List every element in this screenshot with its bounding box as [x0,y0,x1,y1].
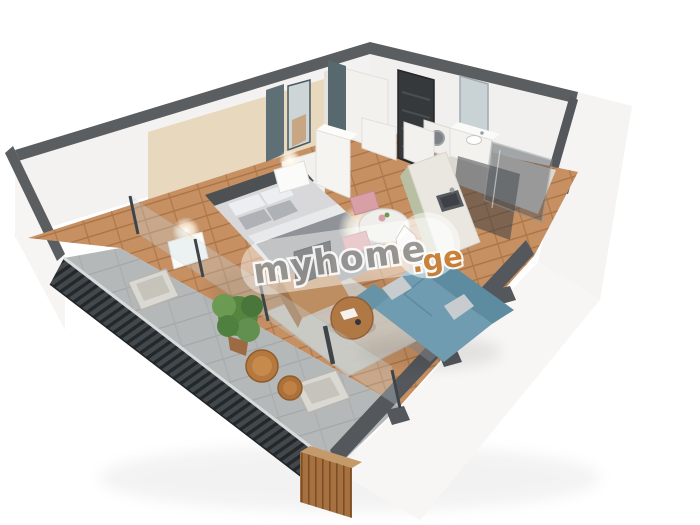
floor-plan-render: myhome .ge [0,0,700,525]
plant-foliage [212,294,236,318]
side-table-large-top [252,356,272,376]
plant-foliage [217,315,239,337]
coffee-table-decor [355,319,361,325]
lamp-glow-right [279,149,301,171]
faucet [480,131,484,135]
slate-partition-left [266,84,284,162]
kitchen-faucet [450,188,455,193]
plant-foliage [236,318,260,342]
table-flowers-leaf [385,213,390,218]
floor-plan-screenshot: myhome .ge [0,0,700,525]
watermark-tld-text: .ge [409,239,465,280]
table-flowers [379,215,386,222]
sink-bowl [467,136,482,145]
side-table-small-top [283,381,297,395]
plant-foliage [241,295,263,317]
